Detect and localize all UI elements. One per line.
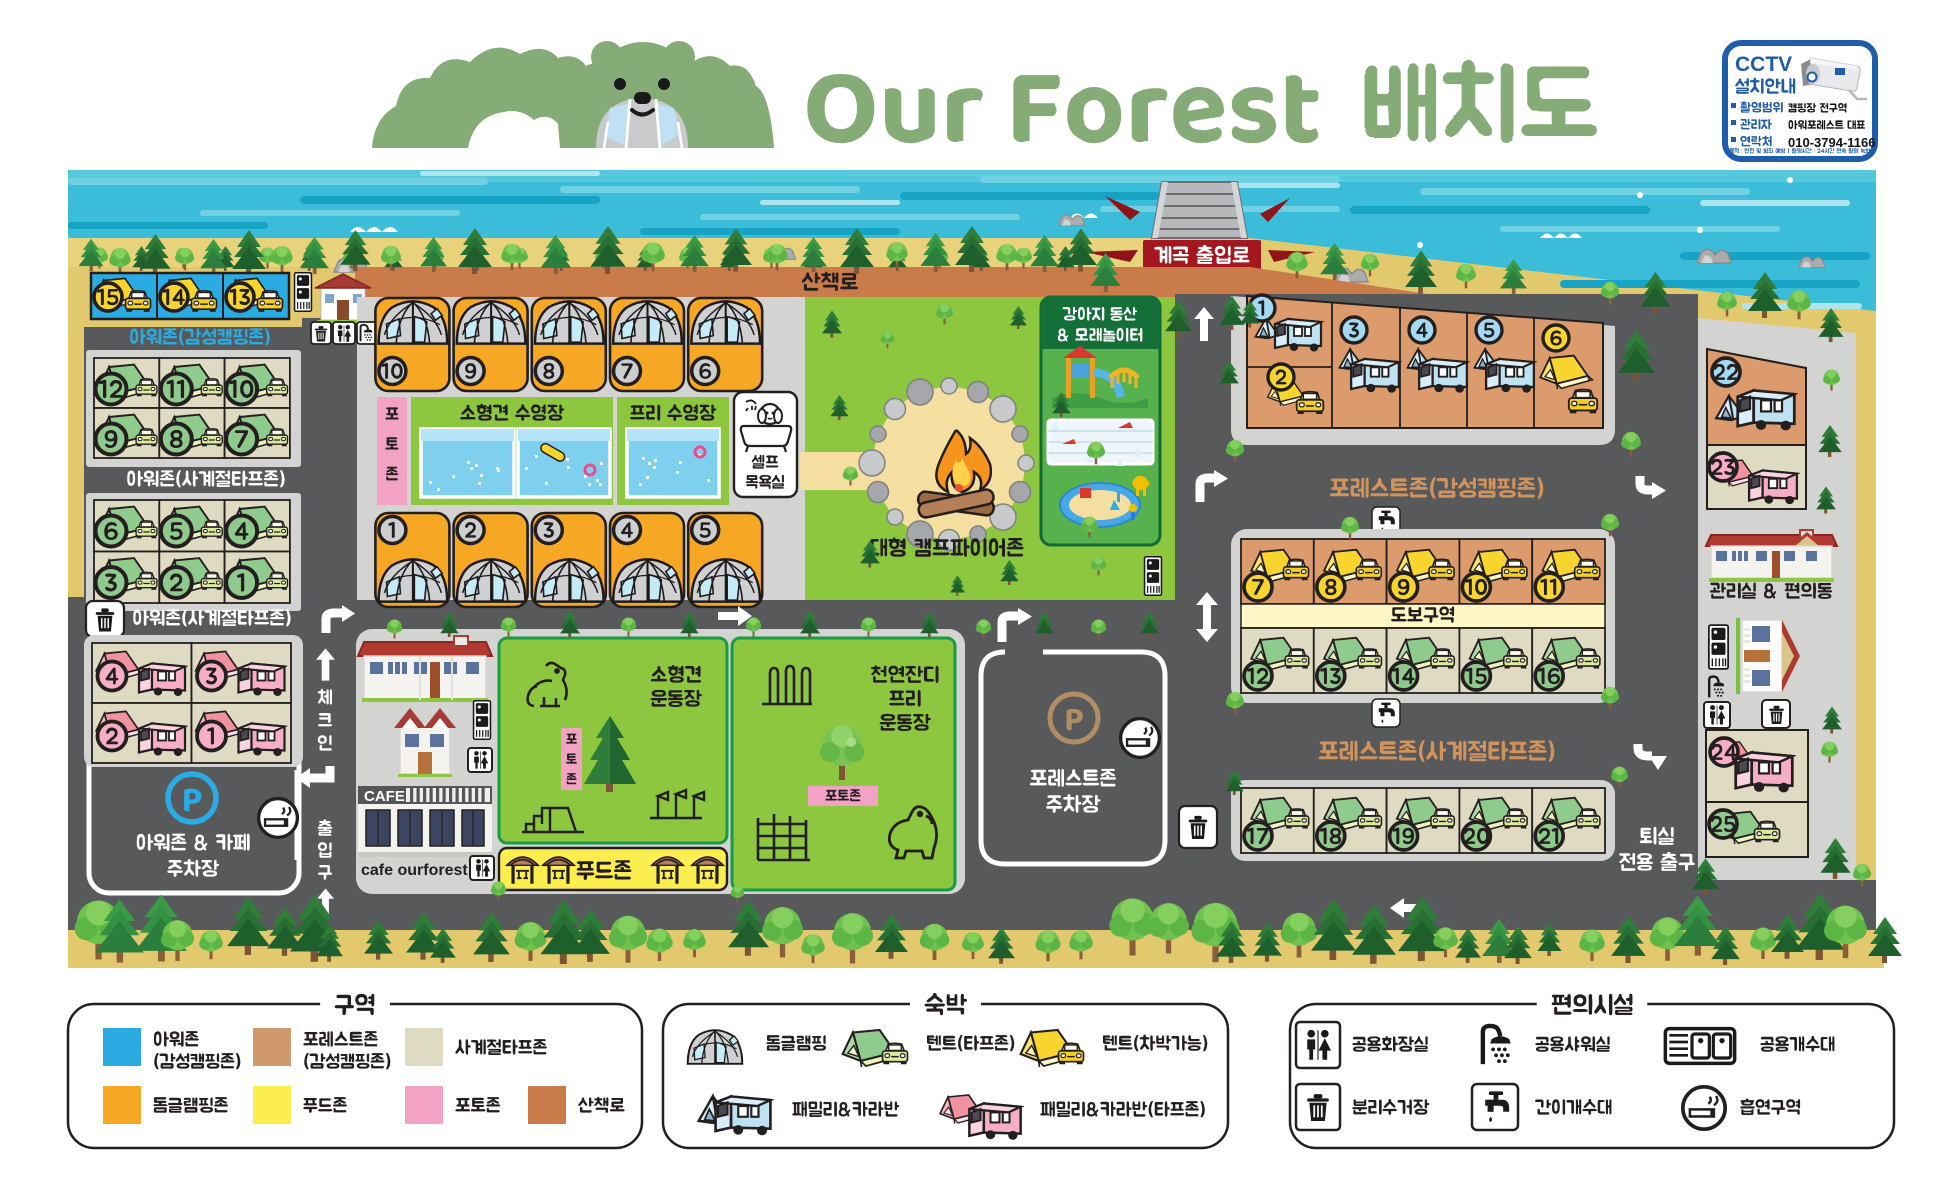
svg-text:CCTV: CCTV (1735, 53, 1792, 76)
svg-text:CAFE: CAFE (364, 788, 405, 805)
svg-text:010-3794-1166: 010-3794-1166 (1788, 135, 1875, 150)
svg-text:cafe ourforest: cafe ourforest (361, 862, 468, 879)
